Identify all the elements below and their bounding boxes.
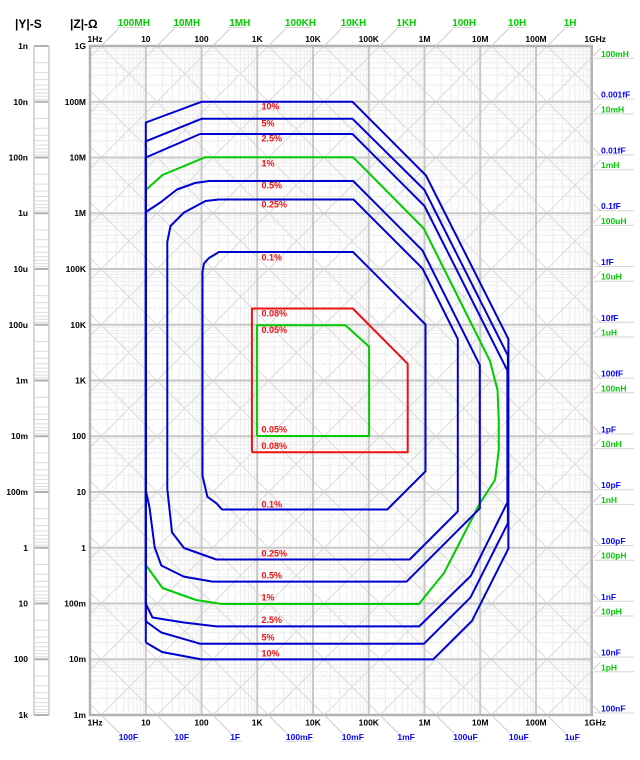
svg-text:2.5%: 2.5% — [262, 615, 283, 625]
svg-text:1H: 1H — [564, 18, 577, 29]
svg-text:1: 1 — [81, 543, 86, 553]
svg-text:1nH: 1nH — [601, 495, 617, 505]
svg-text:1KH: 1KH — [396, 18, 416, 29]
svg-text:10mH: 10mH — [601, 104, 624, 114]
svg-text:1uF: 1uF — [565, 732, 580, 742]
svg-text:1mF: 1mF — [397, 732, 414, 742]
svg-text:100: 100 — [14, 654, 28, 664]
svg-text:10u: 10u — [13, 264, 28, 274]
svg-text:10: 10 — [141, 34, 151, 44]
svg-text:0.1%: 0.1% — [262, 500, 283, 510]
svg-text:0.25%: 0.25% — [262, 200, 288, 210]
svg-text:1M: 1M — [419, 34, 431, 44]
svg-text:100: 100 — [194, 718, 208, 728]
svg-text:100pF: 100pF — [601, 536, 626, 546]
svg-text:100KH: 100KH — [285, 18, 316, 29]
svg-text:0.5%: 0.5% — [262, 571, 283, 581]
svg-text:1m: 1m — [74, 710, 87, 720]
svg-text:10fF: 10fF — [601, 313, 618, 323]
svg-text:100nH: 100nH — [601, 383, 627, 393]
svg-text:100: 100 — [72, 431, 86, 441]
svg-text:10: 10 — [141, 718, 151, 728]
svg-text:100fF: 100fF — [601, 369, 623, 379]
svg-text:100M: 100M — [525, 718, 546, 728]
svg-text:|Z|-Ω: |Z|-Ω — [70, 17, 98, 31]
svg-text:10%: 10% — [262, 649, 280, 659]
svg-text:100m: 100m — [64, 599, 86, 609]
svg-text:10H: 10H — [508, 18, 526, 29]
svg-text:10K: 10K — [305, 34, 321, 44]
svg-text:10m: 10m — [11, 431, 28, 441]
svg-text:10K: 10K — [70, 320, 86, 330]
svg-text:10KH: 10KH — [341, 18, 367, 29]
svg-text:1pF: 1pF — [601, 424, 616, 434]
svg-text:1u: 1u — [18, 208, 28, 218]
svg-text:10pH: 10pH — [601, 607, 622, 617]
svg-text:1K: 1K — [252, 34, 264, 44]
svg-text:100n: 100n — [9, 153, 28, 163]
svg-text:100mH: 100mH — [601, 49, 629, 59]
svg-text:|Y|-S: |Y|-S — [15, 17, 42, 31]
svg-text:10M: 10M — [472, 718, 489, 728]
svg-text:1GHz: 1GHz — [584, 718, 606, 728]
svg-text:1Hz: 1Hz — [88, 34, 103, 44]
svg-text:100M: 100M — [65, 97, 86, 107]
svg-text:10K: 10K — [305, 718, 321, 728]
svg-text:1GHz: 1GHz — [584, 34, 606, 44]
svg-text:1M: 1M — [419, 718, 431, 728]
svg-text:100uH: 100uH — [601, 216, 627, 226]
svg-text:10pF: 10pF — [601, 480, 621, 490]
svg-text:10nF: 10nF — [601, 648, 621, 658]
svg-text:1n: 1n — [18, 41, 28, 51]
svg-text:0.05%: 0.05% — [262, 325, 288, 335]
svg-text:100K: 100K — [66, 264, 87, 274]
svg-text:0.001fF: 0.001fF — [601, 90, 630, 100]
svg-text:10%: 10% — [262, 102, 280, 112]
svg-text:1m: 1m — [16, 376, 29, 386]
svg-text:1: 1 — [23, 543, 28, 553]
svg-text:1F: 1F — [230, 732, 240, 742]
svg-text:1mH: 1mH — [601, 160, 619, 170]
svg-text:100: 100 — [194, 34, 208, 44]
svg-text:10n: 10n — [13, 97, 28, 107]
svg-text:100uF: 100uF — [453, 732, 478, 742]
svg-text:0.08%: 0.08% — [262, 441, 288, 451]
svg-text:1M: 1M — [74, 208, 86, 218]
svg-text:0.25%: 0.25% — [262, 549, 288, 559]
svg-text:100M: 100M — [525, 34, 546, 44]
svg-text:1%: 1% — [262, 159, 275, 169]
svg-text:100pH: 100pH — [601, 551, 627, 561]
svg-text:1G: 1G — [75, 41, 87, 51]
svg-text:100mF: 100mF — [286, 732, 313, 742]
svg-text:0.01fF: 0.01fF — [601, 145, 626, 155]
svg-text:1%: 1% — [262, 593, 275, 603]
svg-text:0.5%: 0.5% — [262, 181, 283, 191]
svg-text:10M: 10M — [472, 34, 489, 44]
svg-text:100H: 100H — [452, 18, 476, 29]
svg-text:10: 10 — [19, 599, 29, 609]
svg-text:1nF: 1nF — [601, 592, 616, 602]
svg-text:0.05%: 0.05% — [262, 425, 288, 435]
svg-text:2.5%: 2.5% — [262, 134, 283, 144]
svg-text:100F: 100F — [119, 732, 138, 742]
svg-text:1K: 1K — [252, 718, 264, 728]
svg-text:5%: 5% — [262, 119, 275, 129]
svg-text:1k: 1k — [19, 710, 29, 720]
svg-text:10uH: 10uH — [601, 272, 622, 282]
svg-text:1uH: 1uH — [601, 328, 617, 338]
svg-text:1fF: 1fF — [601, 257, 614, 267]
svg-text:100m: 100m — [6, 487, 28, 497]
svg-text:10F: 10F — [174, 732, 189, 742]
svg-text:10uF: 10uF — [509, 732, 529, 742]
svg-text:10nH: 10nH — [601, 439, 622, 449]
svg-text:100K: 100K — [359, 34, 380, 44]
svg-text:0.1fF: 0.1fF — [601, 201, 621, 211]
svg-text:100MH: 100MH — [118, 18, 150, 29]
svg-text:5%: 5% — [262, 633, 275, 643]
svg-text:100nF: 100nF — [601, 703, 626, 713]
svg-text:1MH: 1MH — [229, 18, 250, 29]
svg-text:1pH: 1pH — [601, 662, 617, 672]
svg-text:0.08%: 0.08% — [262, 309, 288, 319]
svg-text:100K: 100K — [359, 718, 380, 728]
svg-text:10: 10 — [77, 487, 87, 497]
svg-text:1K: 1K — [75, 376, 87, 386]
svg-text:10M: 10M — [69, 153, 86, 163]
svg-text:0.1%: 0.1% — [262, 253, 283, 263]
svg-text:10MH: 10MH — [173, 18, 200, 29]
svg-text:100u: 100u — [9, 320, 28, 330]
svg-text:10m: 10m — [69, 654, 86, 664]
svg-text:1Hz: 1Hz — [88, 718, 103, 728]
svg-text:10mF: 10mF — [342, 732, 364, 742]
